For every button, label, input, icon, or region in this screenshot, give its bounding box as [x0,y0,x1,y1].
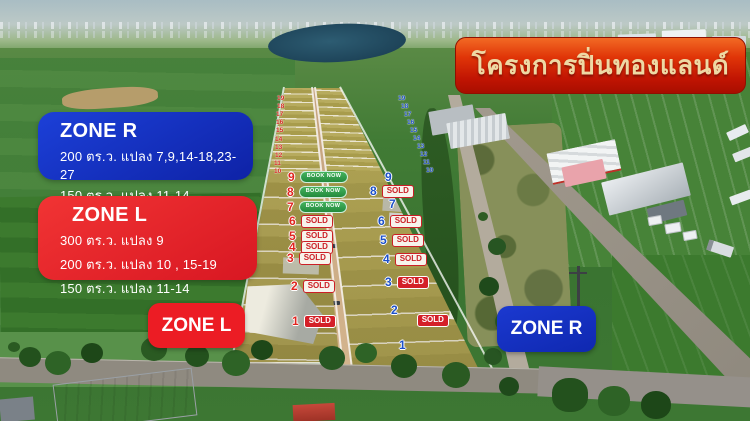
plot-row: 3 SOLD [287,251,331,265]
zone-l-info-title: ZONE L [60,204,247,227]
status-badge: SOLD [304,315,336,328]
plot-number: 3 [287,252,294,264]
plot-number: 1 [292,315,299,327]
plot-number: 9 [385,171,392,183]
plot-number: 5 [380,234,387,246]
strip-plot-number: 14 [413,136,420,143]
plot-row: 6 SOLD [378,214,422,228]
plot-row: 6 SOLD [289,214,333,228]
strip-plot-number: 13 [275,145,282,152]
plot-row: 2 SOLD [291,279,335,293]
status-badge: SOLD [397,276,429,289]
zone-l-info-line: 300 ตร.ว. แปลง 9 [60,230,247,251]
strip-plot-number: 15 [410,128,417,135]
plot-number: 9 [288,171,295,183]
status-badge: SOLD [392,234,424,247]
strip-plot-number: 15 [276,128,283,135]
status-badge: BOOK NOW [300,171,349,183]
status-badge: BOOK NOW [299,186,348,198]
plot-number: 3 [385,276,392,288]
zone-r-info-title: ZONE R [60,120,243,143]
plot-number: 6 [289,215,296,227]
plot-number: 8 [370,185,377,197]
plot-number: 2 [291,280,298,292]
plot-row: 7 [389,197,396,211]
strip-plot-number: 13 [417,144,424,151]
red-roof-house [293,403,336,421]
zone-l-info-line: 200 ตร.ว. แปลง 10 , 15-19 [60,254,247,275]
plot-number: 4 [383,253,390,265]
strip-plot-number: 17 [276,112,283,119]
strip-plot-number: 17 [404,112,411,119]
plot-number: 7 [287,201,294,213]
strip-plot-number: 18 [401,104,408,111]
strip-plot-number: 19 [277,96,284,103]
zone-l-marker: ZONE L [148,303,245,348]
plot-row: 8 SOLD [370,184,414,198]
status-badge: SOLD [417,314,449,327]
power-pole-crossarm [569,272,587,274]
strip-plot-number: 10 [426,168,433,175]
plot-number: 7 [389,198,396,210]
status-badge: SOLD [303,280,335,293]
status-badge: SOLD [301,215,333,228]
strip-plot-number: 12 [420,152,427,159]
status-badge: SOLD [299,252,331,265]
zone-r-info-line: 200 ตร.ว. แปลง 7,9,14-18,23-27 [60,146,243,182]
status-badge: SOLD [382,185,414,198]
strip-plot-number: 11 [274,161,281,168]
status-badge: BOOK NOW [299,201,348,213]
strip-plot-number: 12 [275,153,282,160]
plot-row: 9 BOOK NOW [288,170,348,184]
plot-row: 1 [399,338,406,352]
strip-plot-number: 16 [276,120,283,127]
plot-number: 2 [391,304,398,316]
grey-shed [0,397,35,421]
tree-cluster [8,342,20,352]
strip-plot-number: 14 [275,137,282,144]
zone-l-info-box: ZONE L 300 ตร.ว. แปลง 9 200 ตร.ว. แปลง 1… [38,196,257,280]
strip-plot-number: 16 [407,120,414,127]
plot-row: 8 BOOK NOW [287,185,347,199]
aerial-project-photo: โครงการปิ่นทองแลนด์ ZONE R 200 ตร.ว. แปล… [0,0,750,421]
plot-row: 7 BOOK NOW [287,200,347,214]
plot-number: 1 [399,339,406,351]
project-title-banner: โครงการปิ่นทองแลนด์ [455,37,746,94]
tree-cluster [478,212,488,221]
status-badge: SOLD [395,253,427,266]
plot-row: 5 SOLD [380,233,424,247]
status-badge: SOLD [390,215,422,228]
zone-l-marker-label: ZONE L [162,315,232,337]
strip-plot-number: 11 [423,160,430,167]
strip-plot-number: 10 [274,169,281,176]
plot-number: 6 [378,215,385,227]
zone-r-marker-label: ZONE R [511,318,583,340]
plot-row: 2 SOLD [391,303,435,317]
plot-row: 1 SOLD [292,314,336,328]
project-title: โครงการปิ่นทองแลนด์ [472,45,729,86]
plot-row: 3 SOLD [385,275,429,289]
strip-plot-number: 18 [277,104,284,111]
plot-number: 8 [287,186,294,198]
zone-r-info-box: ZONE R 200 ตร.ว. แปลง 7,9,14-18,23-27 15… [38,112,253,180]
plot-row: 4 SOLD [383,252,427,266]
plot-row: 9 [385,170,392,184]
zone-r-marker: ZONE R [497,306,596,352]
zone-l-info-line: 150 ตร.ว. แปลง 11-14 [60,278,247,299]
strip-plot-number: 19 [398,96,405,103]
